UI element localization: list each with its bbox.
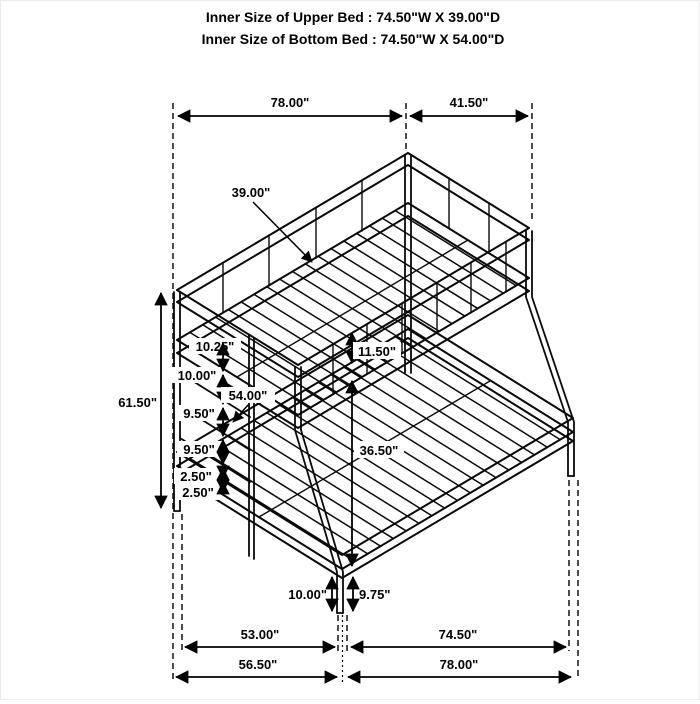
dim-bottom-outer-right: 78.00" — [348, 657, 571, 677]
ladder-dim-5: 2.50" — [180, 469, 211, 484]
ladder-dim-2: 10.00" — [178, 368, 217, 383]
dim-bottom-outer-left: 56.50" — [176, 657, 337, 677]
ladder-dim-3: 9.50" — [183, 406, 214, 421]
dim-bottom-outer-left-label: 56.50" — [239, 657, 278, 672]
back-corner-post — [405, 155, 411, 373]
dim-upper-bed-depth-label: 39.00" — [232, 185, 271, 200]
dim-bottom-inner-right-label: 74.50" — [439, 627, 478, 642]
product-dimension-diagram: Inner Size of Upper Bed : 74.50"W X 39.0… — [0, 0, 700, 700]
dim-clearance-label: 36.50" — [360, 443, 399, 458]
dim-top-width-label: 78.00" — [271, 95, 310, 110]
dim-top-depth: 41.50" — [410, 95, 528, 116]
dim-top-depth-label: 41.50" — [450, 95, 489, 110]
dim-front-leg-label: 10.00" — [288, 587, 327, 602]
dim-bunk-gap-label: 11.50" — [358, 344, 396, 359]
dim-bottom-inner-left: 53.00" — [185, 627, 335, 647]
title-bottom-bed-size: Inner Size of Bottom Bed : 74.50"W X 54.… — [202, 31, 505, 47]
dim-top-width: 78.00" — [178, 95, 402, 116]
ladder-dim-4: 9.50" — [183, 442, 214, 457]
dim-bottom-inner-right: 74.50" — [351, 627, 566, 647]
guardrail-balusters — [223, 178, 506, 394]
bunk-bed-illustration — [174, 153, 574, 613]
bunk-bed-diagram-canvas: Inner Size of Upper Bed : 74.50"W X 39.0… — [1, 1, 699, 699]
dim-lower-bed-width-label: 54.00" — [229, 388, 268, 403]
dim-bottom-inner-left-label: 53.00" — [241, 627, 280, 642]
dim-bottom-outer-right-label: 78.00" — [440, 657, 479, 672]
dim-overall-height-label: 61.50" — [118, 395, 157, 410]
dim-side-leg-height: 9.75" — [353, 577, 390, 611]
ladder-dim-6: 2.50" — [182, 485, 213, 500]
diagram-title: Inner Size of Upper Bed : 74.50"W X 39.0… — [202, 9, 505, 47]
title-upper-bed-size: Inner Size of Upper Bed : 74.50"W X 39.0… — [206, 9, 500, 25]
ladder-dim-1: 10.25" — [196, 339, 235, 354]
dim-ladder-chain: 10.25" 10.00" 9.50" 9.50" 2.50" 2.50" — [171, 338, 241, 500]
dim-side-leg-label: 9.75" — [359, 587, 390, 602]
dim-overall-height: 61.50" — [118, 293, 161, 508]
dim-front-leg-height: 10.00" — [288, 577, 332, 611]
